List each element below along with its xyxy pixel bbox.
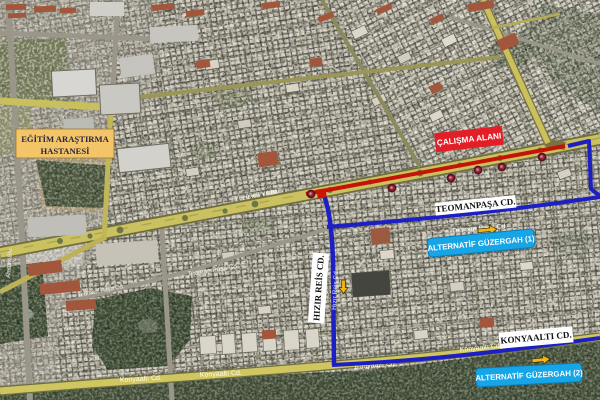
svg-text:EĞİTİM ARAŞTIRMA: EĞİTİM ARAŞTIRMA — [21, 134, 109, 144]
svg-text:HASTANESİ: HASTANESİ — [40, 146, 90, 156]
